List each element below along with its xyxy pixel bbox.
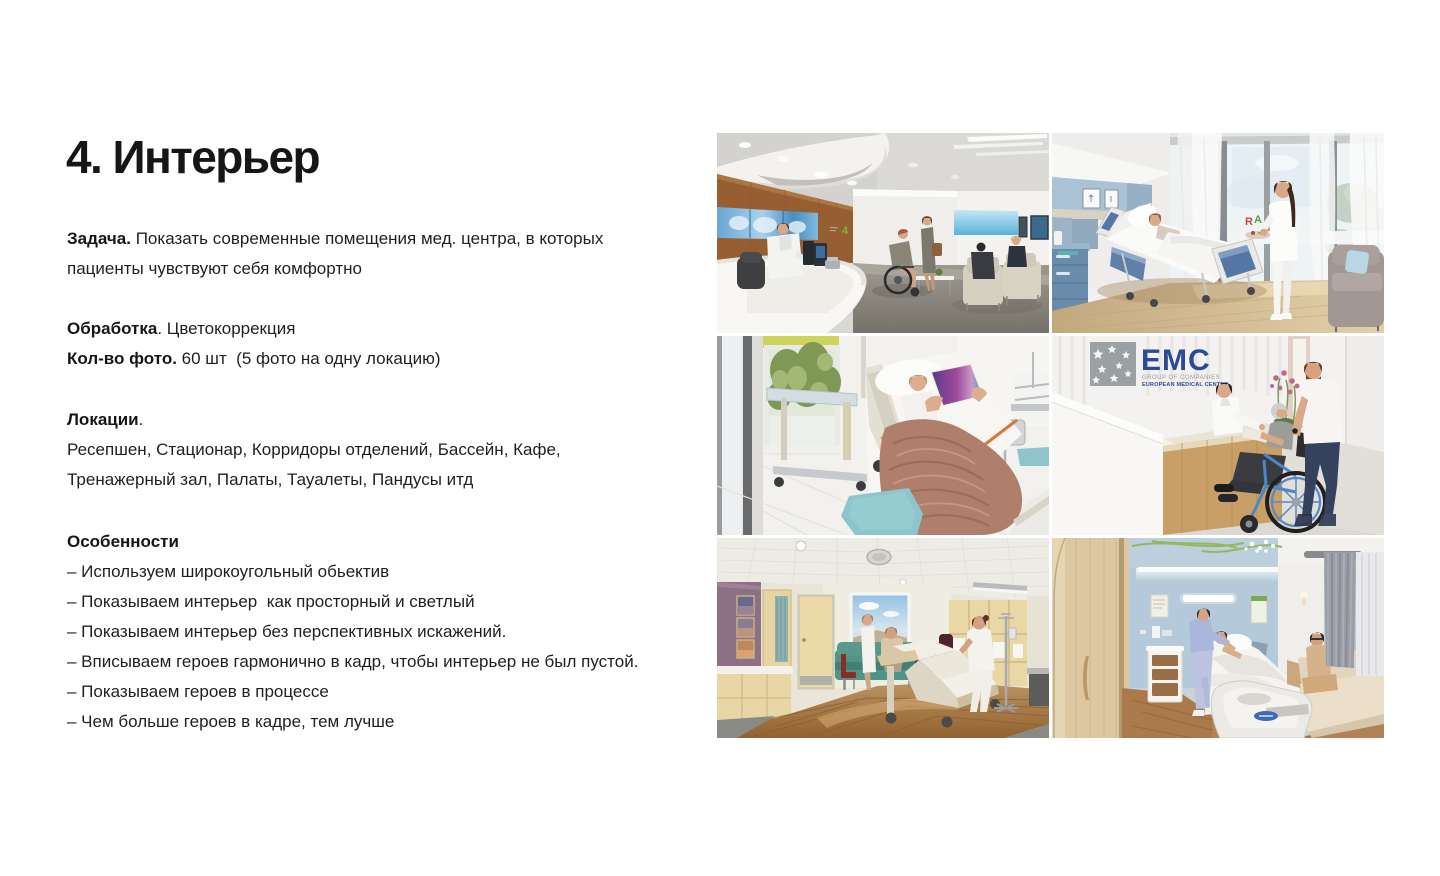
svg-text:A: A (1254, 214, 1262, 226)
svg-text:4: 4 (842, 225, 849, 237)
svg-text:EMC: EMC (1141, 344, 1211, 377)
svg-text:EUROPEAN MEDICAL CENTER: EUROPEAN MEDICAL CENTER (1142, 382, 1228, 388)
svg-text:R: R (1245, 216, 1253, 228)
svg-text:GROUP OF COMPANIES: GROUP OF COMPANIES (1142, 375, 1220, 381)
